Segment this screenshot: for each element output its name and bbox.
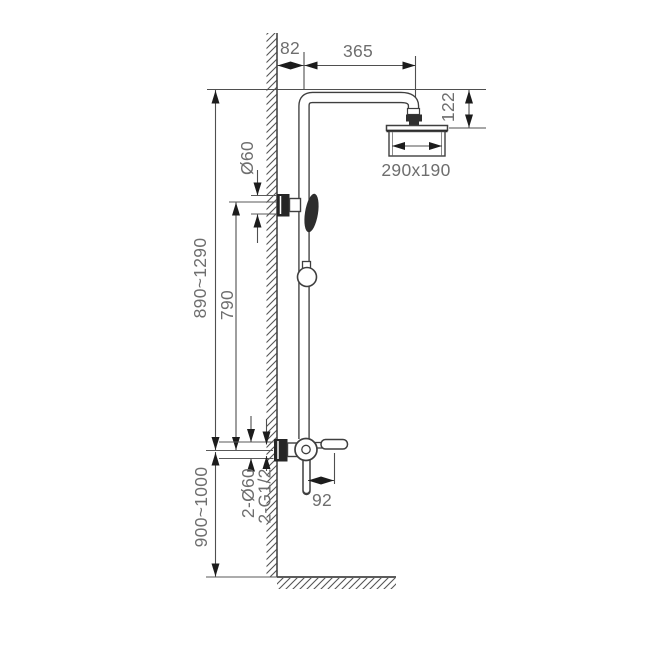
arrow-365-left — [305, 62, 318, 70]
holder-arm — [290, 199, 301, 212]
arrow-790-bottom — [232, 437, 240, 450]
holder-wall-flange — [277, 194, 290, 217]
label-holder-flange: Ø60 — [237, 141, 257, 175]
dimension-lines-over — [308, 142, 442, 485]
shower-column — [274, 98, 448, 492]
mixer-valve — [274, 439, 348, 492]
label-arm-reach: 365 — [343, 41, 373, 61]
arrow-890-bottom — [212, 437, 220, 450]
arrow-82-right — [291, 62, 304, 70]
label-mixer-floor-height: 900~1000 — [191, 467, 211, 548]
floor-hatch — [277, 578, 396, 589]
valve-wall-flange — [274, 439, 288, 462]
label-wall-offset: 82 — [280, 38, 300, 58]
head-connector — [406, 109, 422, 126]
dimension-drawing: 82 365 122 290x190 Ø60 890~1290 790 900~… — [0, 0, 650, 650]
label-overall-height: 890~1290 — [190, 238, 210, 319]
arrow-d60-top — [254, 183, 262, 196]
arrow-122-bottom — [465, 115, 473, 128]
arrow-790-top — [232, 203, 240, 216]
head-body — [389, 132, 445, 157]
overhead-shower — [387, 126, 448, 157]
floor — [277, 577, 396, 589]
label-inlet-thread: 2-G1/2 — [255, 468, 275, 523]
valve-screw — [302, 445, 310, 453]
arrow-122-top — [465, 91, 473, 104]
head-top-plate — [387, 126, 448, 131]
label-head-drop: 122 — [438, 92, 458, 122]
arrow-d60-bottom — [254, 215, 262, 228]
arrow-2d60-top — [247, 429, 255, 442]
arrow-365-right — [403, 62, 416, 70]
shower-column-diagram: 82 365 122 290x190 Ø60 890~1290 790 900~… — [0, 0, 650, 650]
label-spout-reach: 92 — [312, 490, 332, 510]
arrow-82-left — [278, 62, 291, 70]
mixer-handle — [321, 440, 348, 450]
arrow-890-top — [212, 91, 220, 104]
arrow-900-bottom — [212, 564, 220, 577]
label-bar-height: 790 — [217, 290, 237, 320]
arrow-92-right — [321, 477, 334, 485]
slide-bar-holder — [277, 194, 301, 217]
label-head-size: 290x190 — [381, 160, 450, 180]
arrow-900-top — [212, 453, 220, 466]
